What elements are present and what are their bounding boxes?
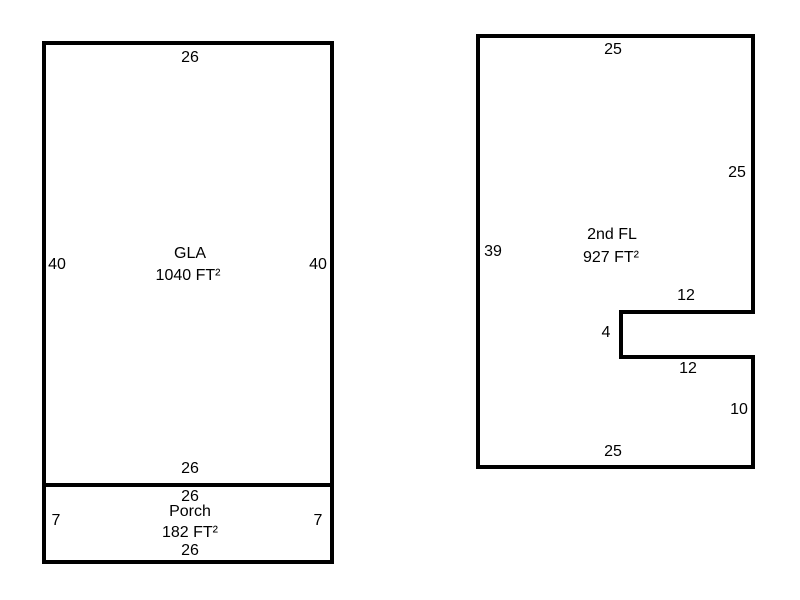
second-floor-dim-notch-top: 12 <box>677 288 695 304</box>
second-floor-area: 927 FT² <box>583 250 639 266</box>
second-floor-dim-notch-bottom: 12 <box>679 361 697 377</box>
gla-dim-left: 40 <box>48 257 66 273</box>
gla-dim-bottom: 26 <box>181 461 199 477</box>
second-floor-dim-top: 25 <box>604 42 622 58</box>
second-floor-dim-left: 39 <box>484 244 502 260</box>
gla-dim-right: 40 <box>309 257 327 273</box>
second-floor-dim-bottom: 25 <box>604 444 622 460</box>
second-floor-label: 2nd FL <box>587 227 637 243</box>
porch-dim-bottom: 26 <box>181 543 199 559</box>
second-floor-dim-notch-left: 4 <box>602 325 611 341</box>
floor-plan-sketch: 26 40 40 GLA 1040 FT² 26 26 Porch 182 FT… <box>0 0 800 600</box>
porch-dim-right: 7 <box>314 513 323 529</box>
gla-area: 1040 FT² <box>156 268 221 284</box>
gla-outline <box>44 43 332 485</box>
porch-dim-left: 7 <box>52 513 61 529</box>
gla-dim-top: 26 <box>181 50 199 66</box>
porch-area: 182 FT² <box>162 525 218 541</box>
second-floor-dim-right-upper: 25 <box>728 165 746 181</box>
gla-label: GLA <box>174 246 206 262</box>
porch-label: Porch <box>169 504 211 520</box>
second-floor-dim-right-lower: 10 <box>730 402 748 418</box>
